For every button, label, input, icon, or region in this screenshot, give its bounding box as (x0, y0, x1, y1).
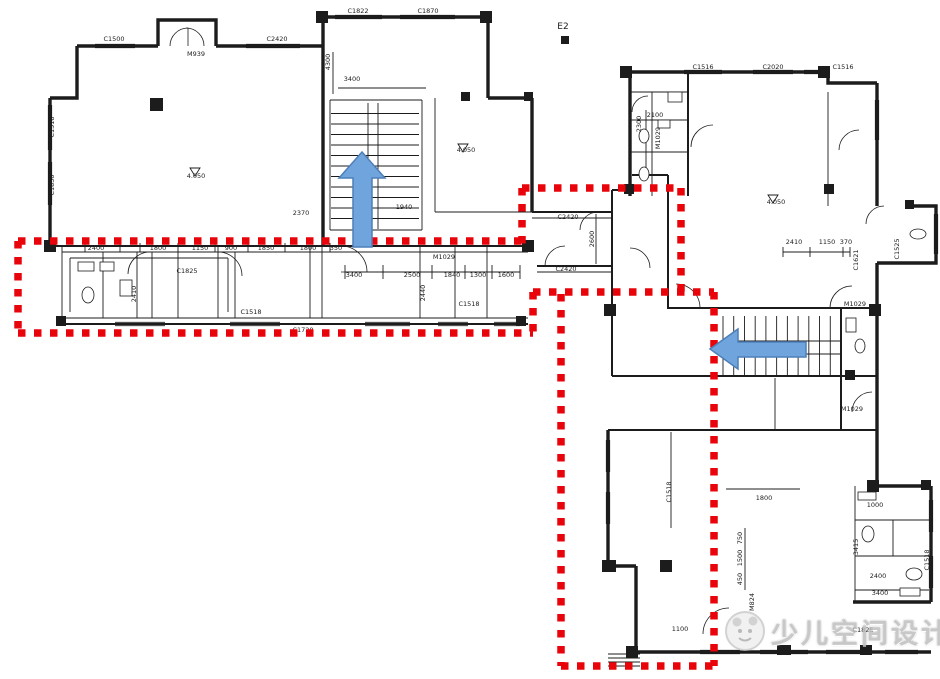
column (620, 66, 632, 78)
stair-left-arrow (710, 329, 806, 369)
column (818, 66, 830, 78)
column (626, 646, 638, 658)
dimension-label: C1516 (692, 63, 713, 71)
floor-plan-drawing: C1500M939C2420C1822C1870E2C1516C2020C151… (0, 0, 940, 679)
dimension-label: 2410 (786, 238, 803, 246)
column (604, 304, 616, 316)
fixture (82, 287, 94, 303)
floor-plan-canvas: C1500M939C2420C1822C1870E2C1516C2020C151… (0, 0, 940, 679)
column (602, 560, 616, 572)
fixture (858, 492, 876, 500)
dimension-label: E2 (557, 22, 568, 32)
dimension-label: 1940 (396, 203, 413, 211)
door-arc (630, 248, 650, 268)
dimension-label: M1029 (844, 300, 866, 308)
column (56, 316, 66, 326)
dimension-label: 3400 (344, 75, 361, 83)
fixture (846, 318, 856, 332)
dimension-label: C1516 (832, 63, 853, 71)
door-arc (186, 28, 204, 46)
dimension-label: C1830 (48, 174, 56, 195)
dimension-label: 750 (736, 532, 744, 544)
column (824, 184, 834, 194)
dimension-label: M1029 (433, 253, 455, 261)
column (867, 480, 879, 492)
door-arc (580, 212, 598, 230)
dimension-label: C1518 (48, 116, 56, 137)
door-arc (632, 96, 648, 112)
dimension-label: 4300 (324, 54, 332, 71)
wall-line (877, 206, 936, 263)
dimension-label: 3415 (852, 539, 860, 556)
column (660, 560, 672, 572)
dimension-label: C2420 (555, 265, 576, 273)
fixture (855, 339, 865, 353)
column (905, 200, 914, 209)
dimension-label: 1100 (672, 625, 689, 633)
dimension-label: C1825 (852, 626, 873, 634)
dimension-label: C2020 (762, 63, 783, 71)
fixture (78, 262, 94, 271)
dimension-label: C1621 (852, 249, 860, 270)
dimension-label: 4.050 (767, 198, 786, 206)
dimension-label: C1525 (893, 238, 901, 259)
dimension-label: 1800 (300, 244, 317, 252)
dimension-label: 2500 (404, 271, 421, 279)
dimension-label: 2440 (419, 285, 427, 302)
door-arc (545, 246, 565, 266)
column (777, 645, 791, 655)
dimension-label: C1518 (458, 300, 479, 308)
dimension-label: M824 (748, 593, 756, 611)
dimension-label: M1029 (654, 127, 662, 149)
column (524, 92, 533, 101)
dimension-label: M939 (187, 50, 205, 58)
fixture (639, 167, 649, 181)
dimension-label: C1500 (103, 35, 124, 43)
dimension-label: C1870 (417, 7, 438, 15)
dimension-label: 1150 (192, 244, 209, 252)
dimension-label: 370 (840, 238, 852, 246)
dimension-label: C2420 (557, 213, 578, 221)
dimension-label: 4.050 (457, 146, 476, 154)
column (860, 645, 872, 655)
fixture (862, 526, 874, 542)
dimension-label: 1600 (498, 271, 515, 279)
fixture (668, 92, 682, 102)
column (480, 11, 492, 23)
dimension-label: C1825 (176, 267, 197, 275)
wall-line (158, 20, 216, 46)
fixture (100, 262, 114, 271)
wall-line (828, 72, 877, 83)
dimension-label: 2300 (635, 116, 643, 133)
column (869, 304, 881, 316)
dimension-label: 2410 (130, 286, 138, 303)
dimension-label: C1822 (347, 7, 368, 15)
dimension-label: C1518 (665, 481, 673, 502)
dimension-label: 900 (225, 244, 237, 252)
column (516, 316, 526, 326)
dimension-label: 2370 (293, 209, 310, 217)
dimension-label: 2400 (88, 244, 105, 252)
door-arc (218, 252, 242, 276)
column (316, 11, 328, 23)
wall-line (50, 46, 77, 98)
dimension-label: C1518 (240, 308, 261, 316)
column (921, 480, 931, 490)
dimension-label: 450 (736, 573, 744, 585)
dimension-label: 2600 (588, 231, 596, 248)
dimension-label: 2400 (870, 572, 887, 580)
dimension-label: 3400 (346, 271, 363, 279)
dimension-label: M1029 (841, 405, 863, 413)
door-arc (128, 252, 150, 274)
dimension-label: 1840 (444, 271, 461, 279)
door-arc (839, 130, 859, 150)
door-arc (691, 125, 713, 147)
door-arc (866, 206, 884, 224)
dimension-label: 1150 (819, 238, 836, 246)
column (150, 98, 163, 111)
fixture (658, 120, 670, 128)
dimension-label: 1800 (150, 244, 167, 252)
dimension-label: 1850 (258, 244, 275, 252)
dimension-label: 1500 (736, 550, 744, 567)
dimension-label: 350 (330, 244, 342, 252)
column (845, 370, 855, 380)
dimension-label: 2100 (647, 111, 664, 119)
dimension-label: 1300 (470, 271, 487, 279)
dimension-label: 4.050 (187, 172, 206, 180)
dimension-label: C2420 (266, 35, 287, 43)
fixture (906, 568, 922, 580)
dimension-label: 3400 (872, 589, 889, 597)
column (461, 92, 470, 101)
fixture (910, 229, 926, 239)
fixture (900, 588, 920, 596)
door-arc (170, 28, 188, 46)
dimension-label: 1800 (756, 494, 773, 502)
dimension-label: 1000 (867, 501, 884, 509)
column (561, 36, 569, 44)
dimension-label: C1518 (923, 549, 931, 570)
